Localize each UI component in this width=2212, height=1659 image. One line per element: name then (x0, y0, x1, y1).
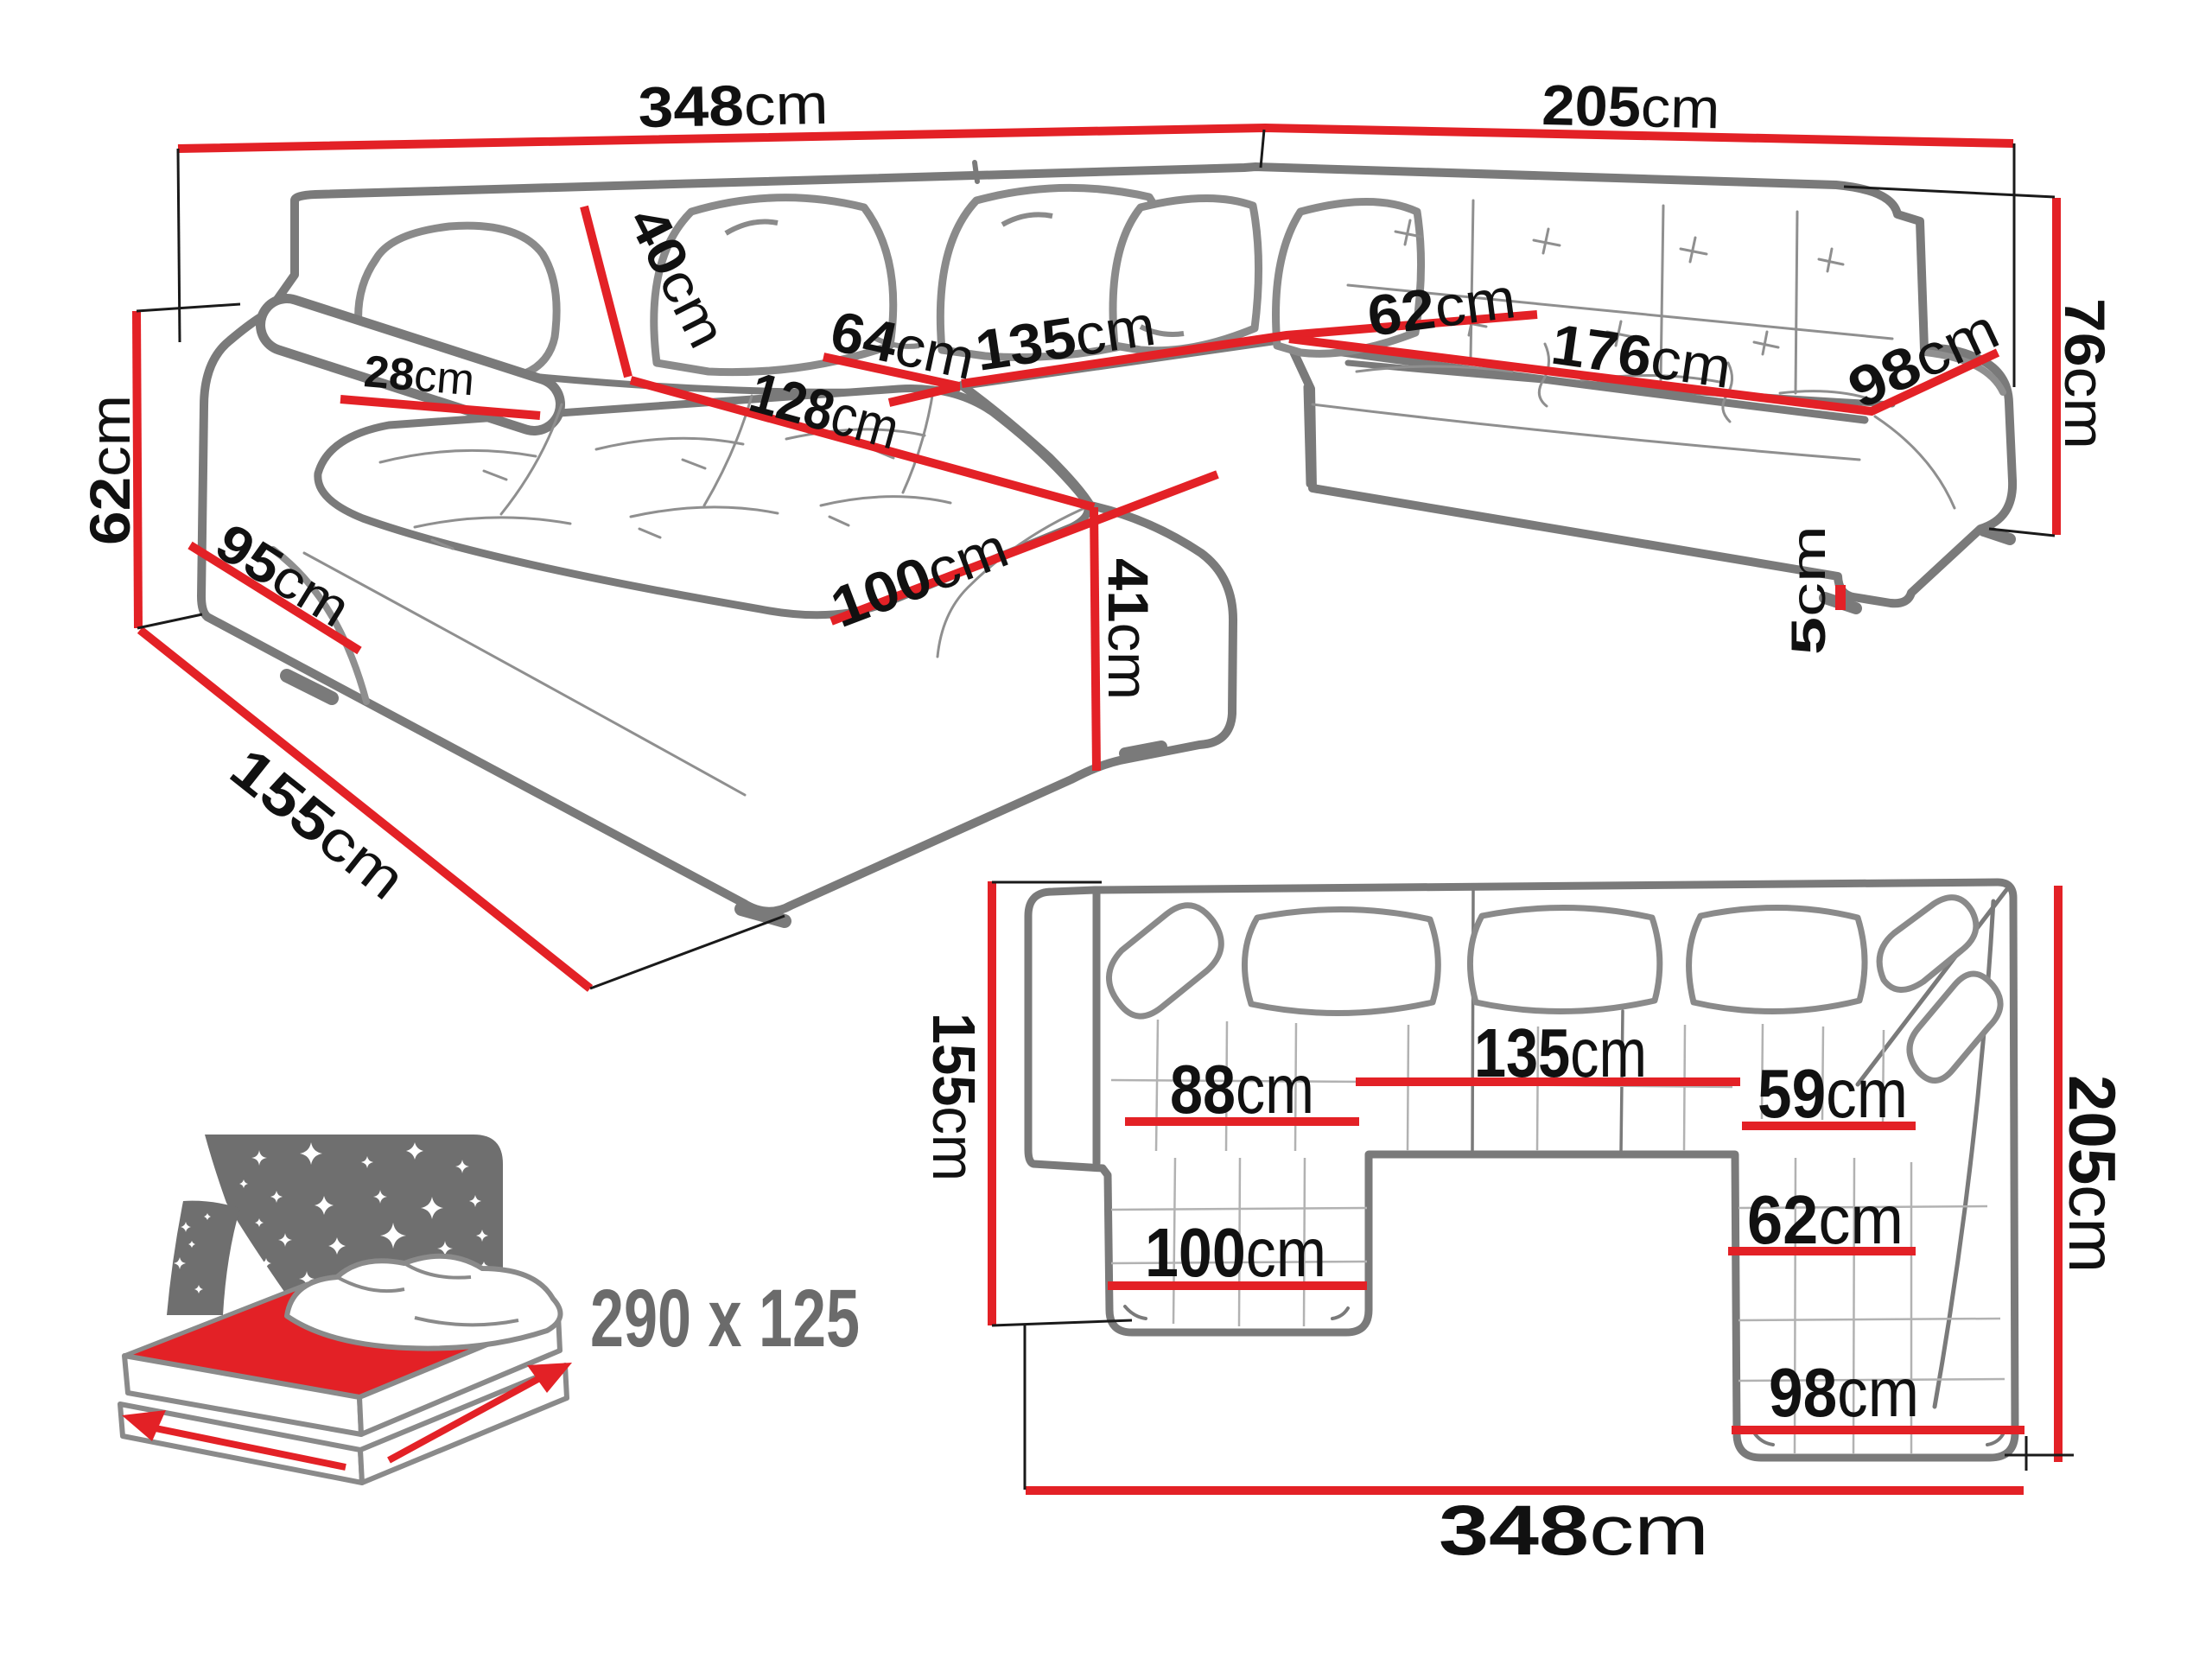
svg-text:5cm: 5cm (1781, 525, 1835, 655)
svg-text:41cm: 41cm (1096, 558, 1160, 700)
svg-text:76cm: 76cm (2053, 298, 2117, 449)
svg-text:59cm: 59cm (1758, 1055, 1908, 1132)
svg-text:100cm: 100cm (1145, 1214, 1326, 1291)
svg-text:28cm: 28cm (362, 346, 476, 405)
svg-text:348cm: 348cm (638, 72, 829, 139)
svg-text:88cm: 88cm (1170, 1051, 1314, 1128)
svg-text:205cm: 205cm (1541, 73, 1721, 140)
svg-text:98cm: 98cm (1769, 1354, 1919, 1431)
svg-text:62cm: 62cm (1747, 1181, 1904, 1258)
svg-text:62cm: 62cm (78, 395, 142, 545)
svg-text:135cm: 135cm (1474, 1014, 1647, 1091)
svg-text:155cm: 155cm (920, 1013, 988, 1181)
svg-text:205cm: 205cm (2055, 1075, 2128, 1273)
svg-text:348cm: 348cm (1439, 1491, 1709, 1570)
svg-text:290 x 125: 290 x 125 (590, 1273, 860, 1364)
